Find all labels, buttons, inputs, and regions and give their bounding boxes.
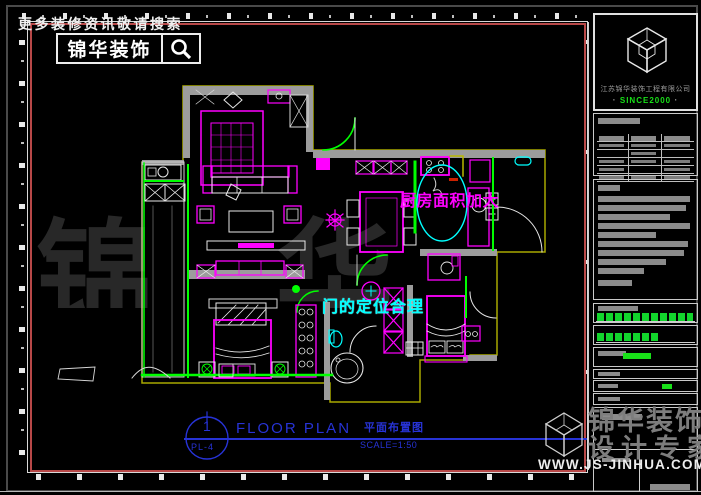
since-line: · SINCE2000 · (595, 95, 696, 105)
brand-tagline: 更多装修资讯敬请搜索 (18, 17, 183, 31)
search-box[interactable]: 锦华装饰 (56, 33, 201, 64)
entry (316, 118, 355, 170)
website-text: WWW.JS-JINHUA.COM (538, 458, 701, 472)
project-name-box (593, 303, 698, 323)
notes-box (593, 179, 698, 300)
walls (142, 86, 545, 402)
corner-watermark-line1: 锦华装饰 (588, 408, 701, 435)
plant-symbol (326, 210, 344, 230)
sheet-scale: SCALE=1:50 (360, 441, 417, 450)
bathroom (329, 326, 376, 383)
bedroom-2 (425, 254, 496, 362)
sheet-title-en: FLOOR PLAN (236, 421, 351, 436)
search-icon[interactable] (163, 35, 199, 62)
field-row-1 (593, 369, 698, 379)
living-room (197, 166, 305, 250)
cube-logo-icon (623, 21, 671, 79)
scale-box (593, 347, 698, 367)
unit-type-box (593, 325, 698, 345)
sheet-code: PL-4 (191, 443, 214, 452)
table-grid (597, 134, 694, 182)
cad-sheet: 锦 华 装 饰 (0, 0, 701, 495)
revision-table (593, 113, 698, 176)
cube-logo-icon-small (538, 408, 590, 460)
sheet-number: 1 (203, 419, 211, 433)
right-balcony (493, 157, 542, 252)
company-name: 江苏锦华装饰工程有限公司 (595, 84, 696, 94)
left-balcony (142, 162, 185, 377)
company-logo-box: 江苏锦华装饰工程有限公司 · SINCE2000 · (593, 13, 698, 111)
door-hinge-dot (292, 285, 300, 293)
sheet-title-cn: 平面布置图 (364, 423, 424, 434)
since-text: SINCE2000 (620, 96, 671, 105)
red-mark (449, 178, 458, 181)
search-box-label: 锦华装饰 (58, 35, 161, 62)
annotation-door-note: 门的定位合理 (322, 300, 424, 316)
corner-watermark: 锦华装饰 设计专家 WWW.JS-JINHUA.COM (536, 396, 701, 486)
annotation-kitchen-note: 厨房面积加大 (400, 194, 499, 210)
field-row-2 (593, 380, 698, 392)
study-room (196, 90, 308, 200)
master-wardrobe (296, 305, 316, 377)
